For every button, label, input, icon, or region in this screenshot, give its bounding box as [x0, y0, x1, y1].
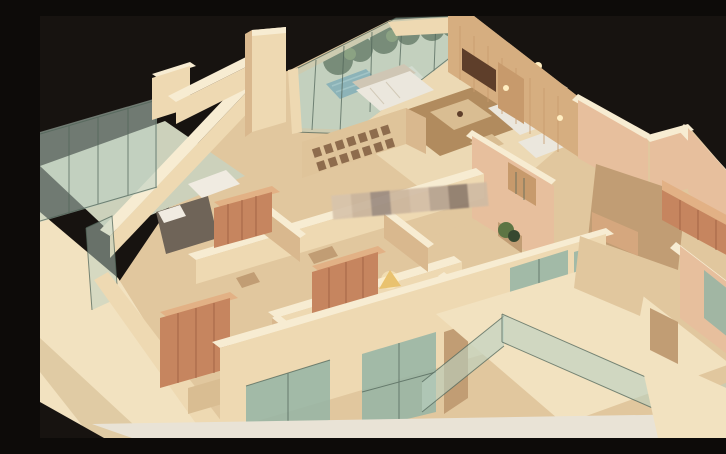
- wall-sconce-right: [557, 115, 563, 121]
- pillar-side: [245, 30, 252, 137]
- model-photo-canvas: [40, 16, 726, 438]
- hall-plant-dark: [508, 230, 520, 242]
- watermark-tile: [467, 182, 489, 208]
- watermark-tile: [448, 184, 470, 210]
- wall-sconce-left: [503, 85, 509, 91]
- pillar-face: [252, 27, 286, 132]
- table-decor: [457, 111, 463, 117]
- watermark-tile: [370, 191, 392, 217]
- model-photo: Top-down photograph of a wooden architec…: [40, 16, 726, 438]
- watermark-tile: [331, 194, 353, 220]
- watermark-tile: [428, 185, 450, 211]
- watermark-tile: [351, 192, 373, 218]
- watermark-tile: [389, 189, 411, 215]
- watermark-tile: [409, 187, 431, 213]
